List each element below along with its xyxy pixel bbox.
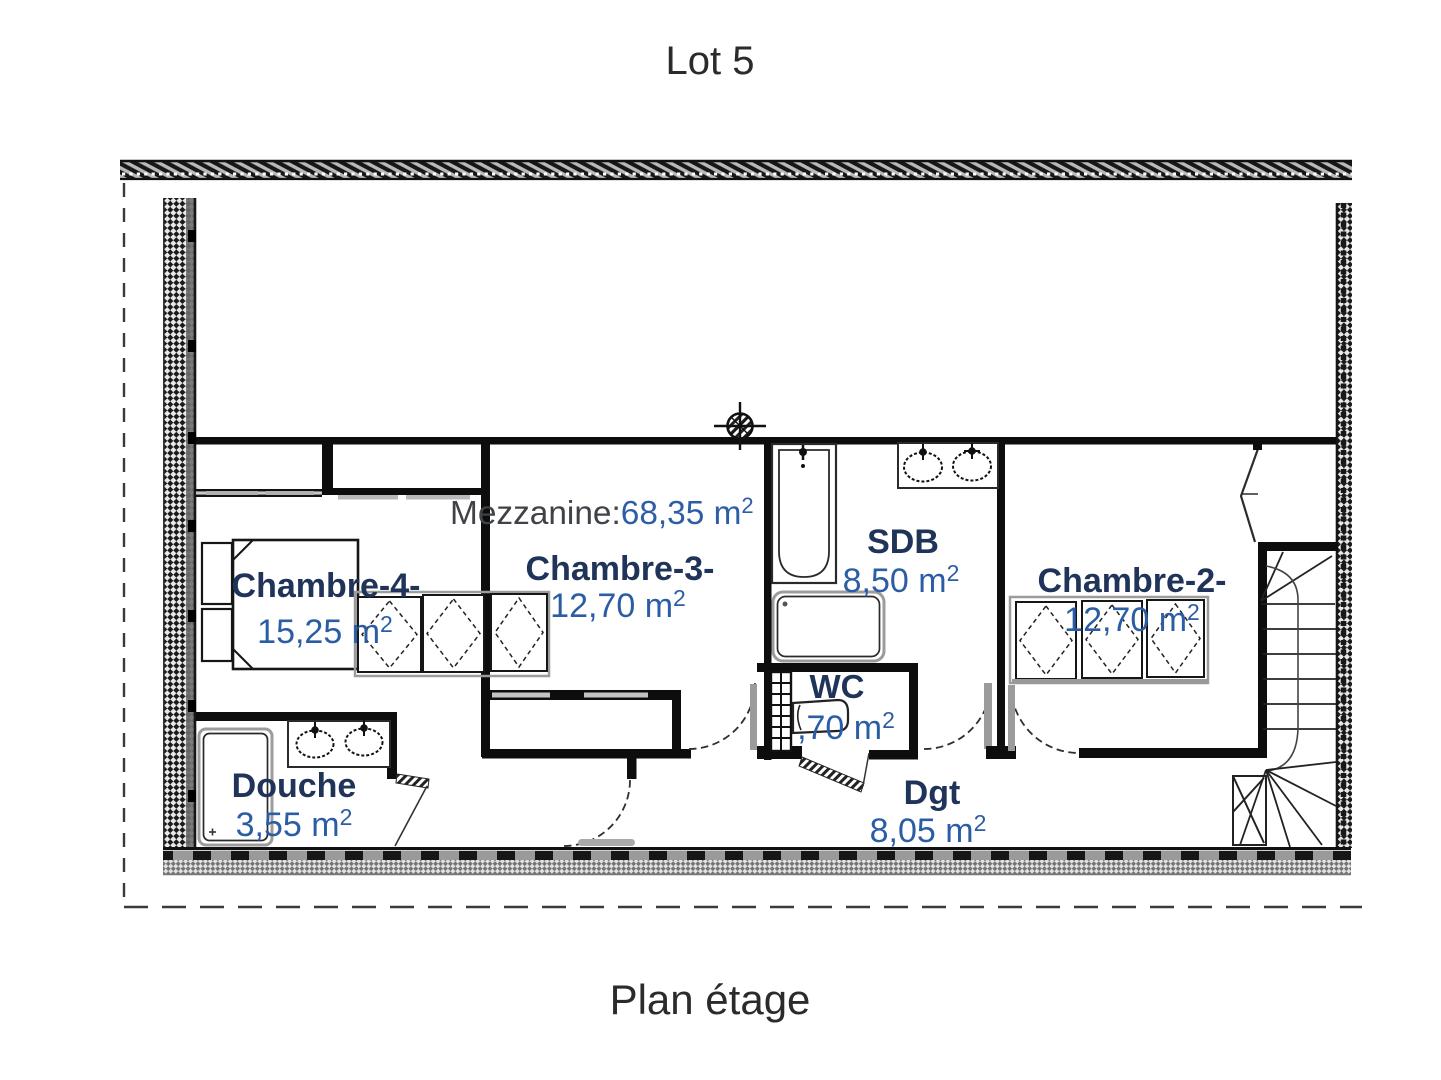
svg-text:Dgt: Dgt — [904, 774, 961, 812]
svg-text:SDB: SDB — [867, 523, 939, 561]
svg-text:12,70 m2: 12,70 m2 — [1064, 599, 1200, 639]
svg-text:,70 m2: ,70 m2 — [797, 707, 895, 747]
svg-text:Mezzanine:68,35 m2: Mezzanine:68,35 m2 — [450, 493, 754, 532]
svg-text:Lot 5: Lot 5 — [666, 39, 755, 83]
svg-text:Douche: Douche — [232, 767, 357, 805]
svg-text:15,25 m2: 15,25 m2 — [257, 611, 393, 651]
svg-text:3,55 m2: 3,55 m2 — [236, 804, 353, 844]
svg-text:Chambre-2-: Chambre-2- — [1038, 562, 1227, 600]
svg-text:8,50 m2: 8,50 m2 — [843, 560, 960, 600]
svg-text:Chambre-3-: Chambre-3- — [526, 550, 715, 588]
svg-text:8,05 m2: 8,05 m2 — [870, 810, 987, 850]
svg-text:Plan étage: Plan étage — [610, 976, 811, 1023]
svg-text:12,70 m2: 12,70 m2 — [550, 585, 686, 625]
svg-text:Chambre-4-: Chambre-4- — [232, 567, 421, 605]
svg-text:WC: WC — [810, 668, 865, 705]
